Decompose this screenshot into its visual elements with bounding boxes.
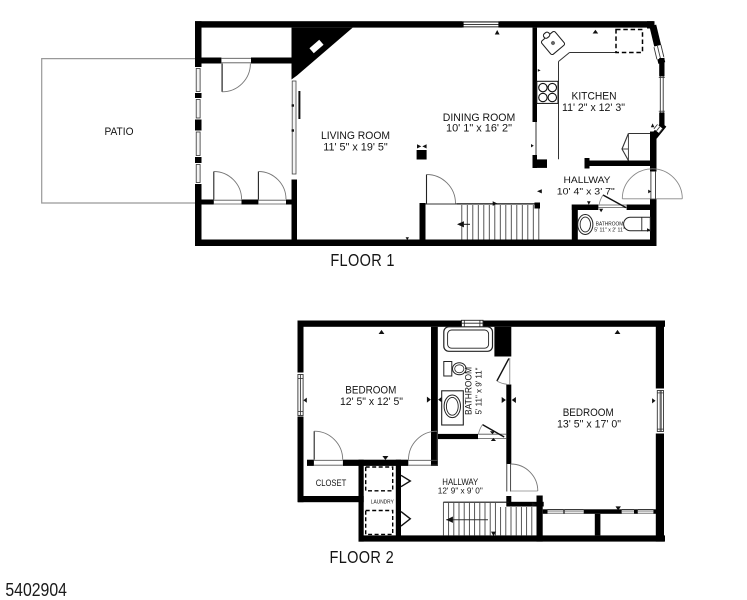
svg-text:LAUNDRY: LAUNDRY bbox=[371, 499, 394, 505]
svg-text:11' 5" x 19' 5": 11' 5" x 19' 5" bbox=[323, 142, 388, 154]
svg-text:5402904: 5402904 bbox=[5, 580, 67, 600]
svg-text:10' 1" x 16' 2": 10' 1" x 16' 2" bbox=[446, 123, 512, 135]
svg-text:FLOOR 2: FLOOR 2 bbox=[330, 547, 395, 567]
svg-text:PATIO: PATIO bbox=[105, 126, 134, 138]
svg-text:BATHROOM: BATHROOM bbox=[464, 367, 474, 415]
svg-text:5' 11" x 2' 11": 5' 11" x 2' 11" bbox=[594, 227, 625, 233]
svg-text:HALLWAY: HALLWAY bbox=[564, 175, 612, 186]
svg-text:11' 2" x 12' 3": 11' 2" x 12' 3" bbox=[562, 102, 625, 114]
svg-text:FLOOR 1: FLOOR 1 bbox=[330, 250, 395, 270]
svg-text:13' 5" x 17' 0": 13' 5" x 17' 0" bbox=[557, 418, 621, 430]
svg-text:12' 9" x 9' 0": 12' 9" x 9' 0" bbox=[438, 485, 483, 495]
svg-text:LIVING ROOM: LIVING ROOM bbox=[321, 130, 390, 142]
svg-text:12' 5" x 12' 5": 12' 5" x 12' 5" bbox=[340, 396, 403, 408]
svg-text:BEDROOM: BEDROOM bbox=[563, 407, 614, 419]
svg-text:KITCHEN: KITCHEN bbox=[572, 90, 617, 102]
svg-text:CLOSET: CLOSET bbox=[316, 478, 347, 488]
svg-text:10' 4" x 3' 7": 10' 4" x 3' 7" bbox=[557, 187, 615, 198]
svg-text:5' 11" x 9' 11": 5' 11" x 9' 11" bbox=[474, 367, 484, 414]
